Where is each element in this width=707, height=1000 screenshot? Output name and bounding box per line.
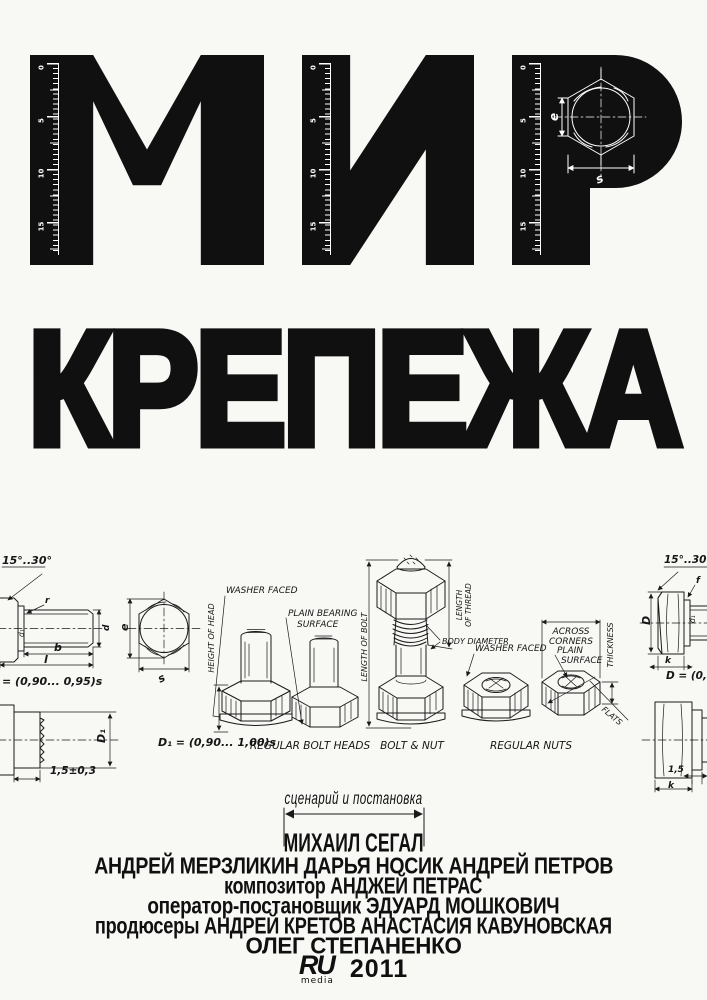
caption-bolt-nut: BOLT & NUT: [380, 740, 445, 752]
washer-faced-bolt-label: WASHER FACED: [226, 586, 298, 596]
credit-director: МИХАИЛ СЕГАЛ: [0, 829, 707, 857]
plain-bearing-label-1: PLAIN BEARING: [288, 609, 358, 619]
plain-bearing-label-2: SURFACE: [297, 620, 339, 630]
ruler: 051015: [524, 63, 541, 255]
formula-left: = (0,90... 0,95)s: [2, 675, 103, 688]
ruler-number: 5: [521, 115, 528, 127]
ruler: 051015: [314, 63, 331, 255]
dim-l: l: [44, 653, 48, 666]
dim-f: f: [696, 576, 701, 586]
fastener-blueprint: 15°..30° r d₁ d b l = (0,90... 0,95)s e …: [0, 550, 707, 795]
formula-right: D = (0,90: [666, 670, 707, 682]
title-mir: 051015 051015 051015 e s: [0, 0, 707, 280]
plain-surface-label-1: PLAIN: [557, 646, 583, 656]
washer-faced-nut-label: WASHER FACED: [475, 644, 547, 654]
ru-media-logo-sub: media: [299, 976, 334, 986]
dim-d1: d₁: [17, 629, 26, 637]
bolt-head-plain-bearing: [292, 636, 358, 727]
release-year: 2011: [350, 955, 408, 984]
tol-bottom-left: 1,5±0,3: [50, 765, 96, 777]
angle-label-left: 15°..30°: [2, 554, 52, 567]
bolt-side-view-left: 15°..30° r d₁ d b l = (0,90... 0,95)s: [0, 554, 112, 688]
ruler-number: 10: [521, 168, 528, 180]
ru-media-logo-text: RU: [299, 952, 334, 979]
bolt-head-washer-faced: [220, 630, 292, 726]
ruler-number: 0: [39, 62, 46, 74]
thickness-label: THICKNESS: [606, 622, 615, 667]
length-of-bolt-label: LENGTH OF BOLT: [360, 611, 369, 681]
dim-D1: D₁: [95, 729, 108, 743]
bolt-head-view-bottom-right: 1,5 k: [642, 702, 707, 792]
title-krepezha: КРЕПЕЖА: [28, 334, 679, 450]
letter-i: 051015: [302, 55, 474, 265]
dim-k: k: [665, 656, 672, 666]
dim-d1-right: d₁: [688, 615, 697, 623]
ruler-number: 0: [521, 62, 528, 74]
ruler-number: 10: [311, 168, 318, 180]
letter-r: 051015 e s: [512, 55, 682, 265]
dim-D: D: [640, 616, 653, 625]
nut-plain-surface: ACROSS CORNERS PLAIN SURFACE THICKNESS F…: [542, 620, 628, 727]
ruler-number: 15: [521, 221, 528, 233]
dim-e-label: e: [547, 113, 561, 121]
bolt-head-view-bottom-left: D₁ 1,5±0,3 D₁ = (0,90... 1,00)s: [0, 705, 277, 782]
dim-r: r: [45, 596, 50, 606]
ruler-number: 10: [39, 168, 46, 180]
letter-m: 051015: [30, 55, 264, 265]
tol-bottom-right: 1,5: [668, 765, 684, 775]
footer-logo-row: RU media 2011: [0, 952, 707, 986]
hex-head-front-view: e s: [118, 592, 200, 686]
bolt-side-view-right: 15°..30° D f d₁ k D = (0,90: [640, 554, 707, 682]
ruler-number: 0: [311, 62, 318, 74]
ruler-number: 5: [39, 115, 46, 127]
height-of-head-label: HEIGHT OF HEAD: [207, 603, 216, 672]
plain-surface-label-2: SURFACE: [561, 656, 603, 666]
hex-nut-inset-diagram: e s: [546, 61, 678, 185]
length-of-thread-label-1: LENGTH: [455, 589, 464, 620]
caption-regular-nuts: REGULAR NUTS: [490, 740, 572, 752]
ruler-number: 15: [39, 221, 46, 233]
dim-b: b: [54, 641, 62, 654]
flats-label: FLATS: [600, 705, 624, 727]
ruler-number: 5: [311, 115, 318, 127]
ru-media-logo: RU media: [299, 952, 334, 986]
nut-washer-faced: WASHER FACED: [462, 644, 547, 721]
dim-d: d: [102, 624, 112, 631]
dim-s: s: [156, 671, 168, 686]
ruler-number: 15: [311, 221, 318, 233]
dim-s-label: s: [594, 171, 606, 185]
dim-e: e: [118, 623, 131, 631]
title-line2-text: КРЕПЕЖА: [28, 307, 679, 469]
length-of-thread-label-2: OF THREAD: [464, 583, 473, 627]
ruler: 051015: [42, 63, 59, 255]
angle-label-right: 15°..30°: [664, 554, 707, 566]
formula-bottom-left: D₁ = (0,90... 1,00)s: [158, 736, 277, 749]
across-corners-label-1: ACROSS: [552, 627, 590, 637]
